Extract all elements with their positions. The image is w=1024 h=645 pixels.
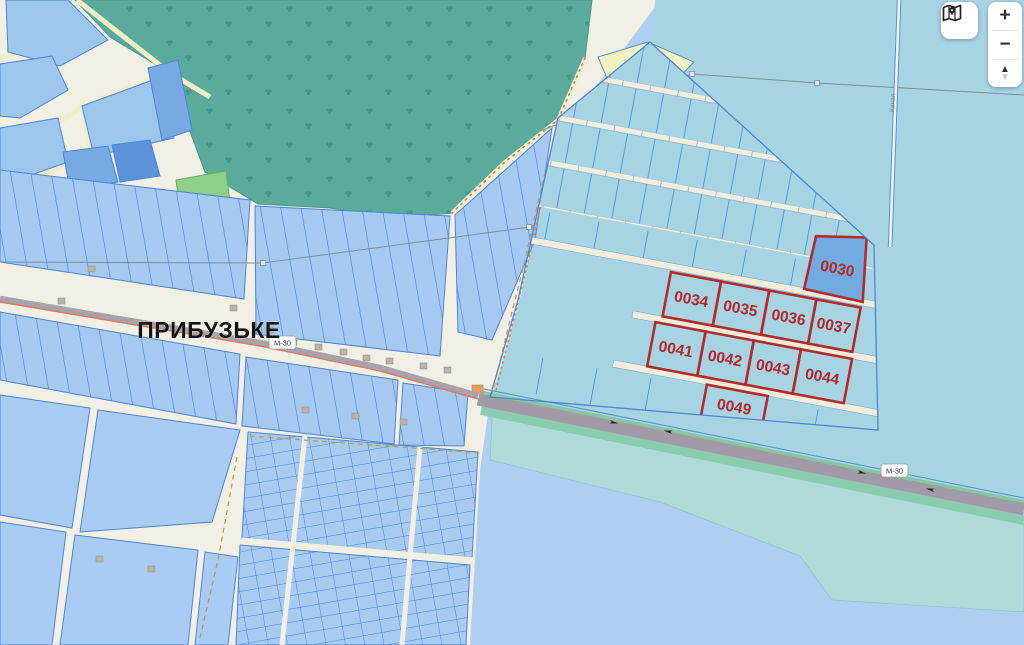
place-label: ПРИБУЗЬКЕ xyxy=(137,317,281,343)
highway-shield: М-30 xyxy=(881,464,908,477)
svg-text:М-30: М-30 xyxy=(886,467,903,476)
zoom-out-button[interactable]: − xyxy=(988,31,1022,59)
zoom-controls: + − ▲ ▼ xyxy=(988,2,1022,87)
map-style-button[interactable] xyxy=(941,2,978,39)
tilt-control[interactable]: ▲ ▼ xyxy=(988,60,1022,87)
canal-label: Канал xyxy=(889,93,897,112)
zoom-in-button[interactable]: + xyxy=(988,2,1022,30)
tilt-down-icon: ▼ xyxy=(1000,74,1010,82)
map-canvas[interactable]: 0030 0034 0035 0036 0037 0041 0042 0043 … xyxy=(0,0,1024,645)
map-viewer: 0030 0034 0035 0036 0037 0041 0042 0043 … xyxy=(0,0,1024,645)
village-south-parcels xyxy=(0,395,240,645)
map-pin-icon xyxy=(941,2,963,24)
